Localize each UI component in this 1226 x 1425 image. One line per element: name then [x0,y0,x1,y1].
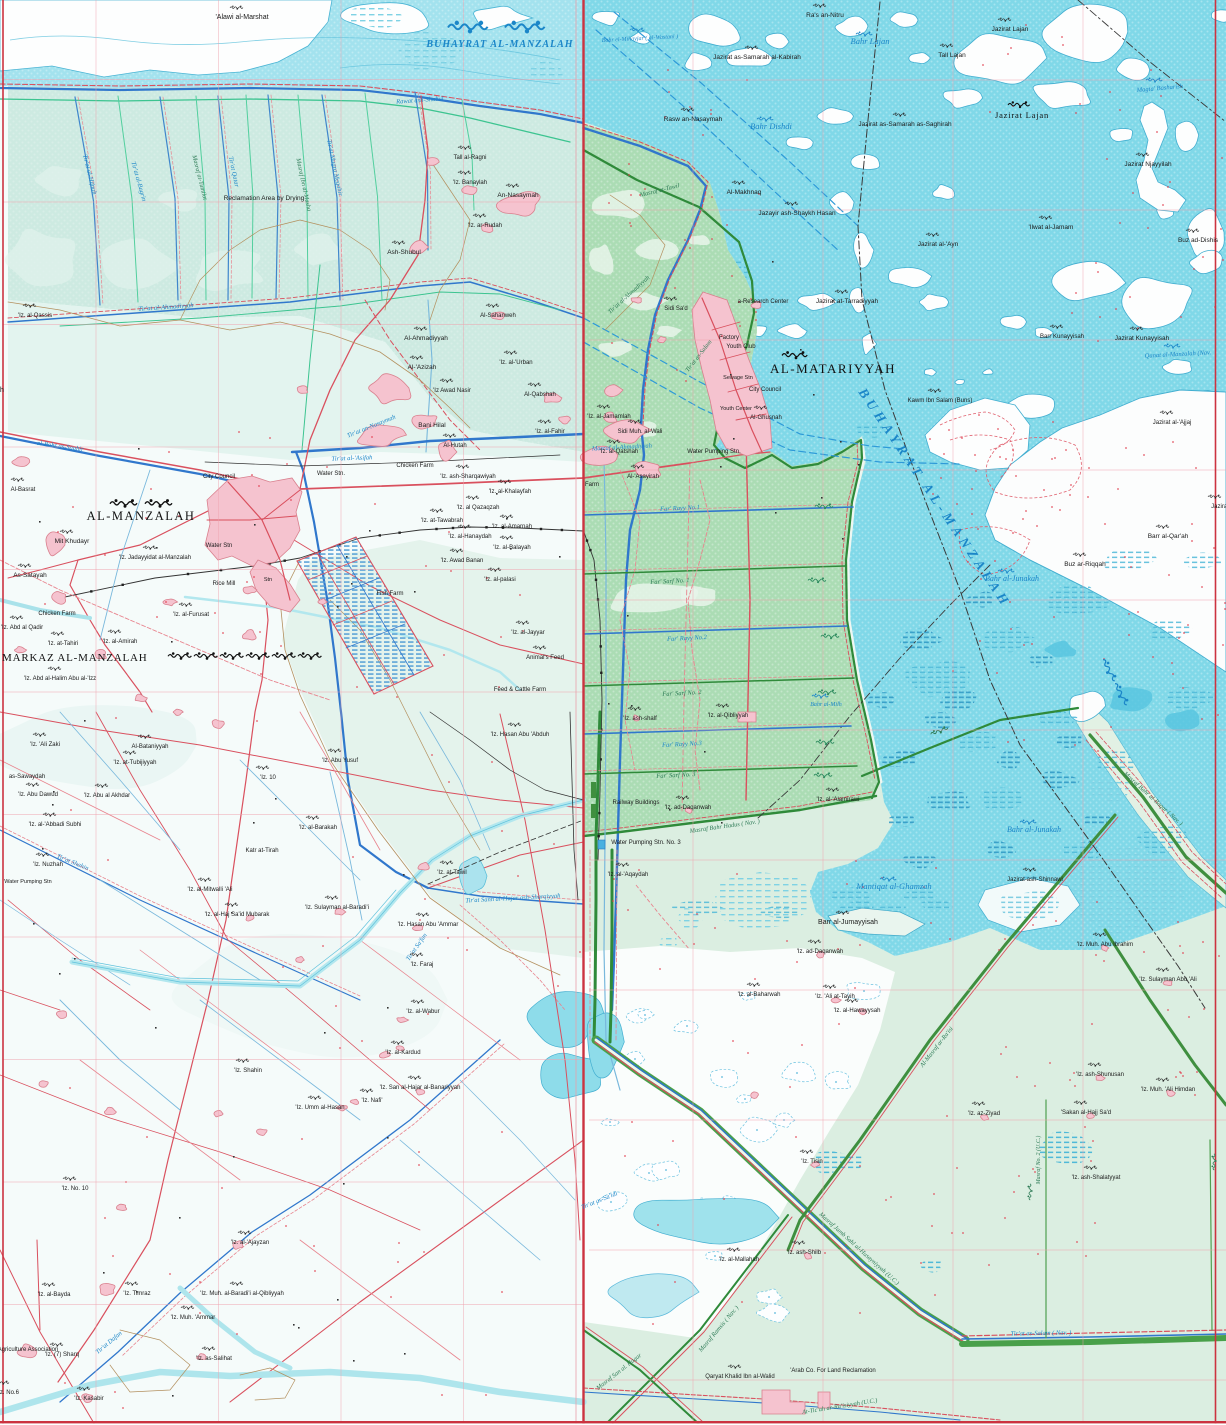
svg-text:Water Pumping Stn.: Water Pumping Stn. [687,449,741,455]
svg-text:Sewage Stn: Sewage Stn [723,375,753,381]
svg-text:'Iz. al-'Urban: 'Iz. al-'Urban [499,360,532,366]
svg-text:'Iz. al-'Abbadi Subhi: 'Iz. al-'Abbadi Subhi [29,822,82,828]
svg-text:'Iz. ash-shalf: 'Iz. ash-shalf [623,716,657,722]
svg-text:'Iz. San al-Hajar al-Banariyya: 'Iz. San al-Hajar al-Banariyyan [380,1085,461,1091]
svg-text:Railway Buildings: Railway Buildings [612,800,659,806]
svg-text:Tall al-Ragni: Tall al-Ragni [453,155,486,161]
svg-text:Bahr al-Milh: Bahr al-Milh [810,702,842,708]
svg-text:Al-Bataniyyah: Al-Bataniyyah [131,744,168,750]
svg-text:'Iz. al-Balayah: 'Iz. al-Balayah [493,545,531,551]
svg-text:'Iz. Faraj: 'Iz. Faraj [411,962,434,968]
svg-text:'Iz. Awad Banan: 'Iz. Awad Banan [441,558,484,564]
svg-text:Animal's Feed: Animal's Feed [526,655,564,661]
svg-text:'Iz. al-Haj Sa'id Mubarak: 'Iz. al-Haj Sa'id Mubarak [205,912,271,918]
svg-text:'Iz. al-Jamamlah: 'Iz. al-Jamamlah [587,414,631,420]
svg-text:Qaryat Khalid Ibn al-Walid: Qaryat Khalid Ibn al-Walid [705,1374,774,1380]
svg-text:As-Satayah: As-Satayah [13,572,47,579]
svg-text:An-Nasaymah: An-Nasaymah [497,192,539,199]
svg-text:'Iz. at-Tahiri: 'Iz. at-Tahiri [48,641,79,647]
svg-text:'Iz. Muh. Abu Ibrahim: 'Iz. Muh. Abu Ibrahim [1077,942,1133,948]
svg-text:Barr Kunayyisah: Barr Kunayyisah [1040,334,1084,340]
svg-text:MARKAZ AL-MANZALAH: MARKAZ AL-MANZALAH [2,652,147,664]
svg-text:'Iz. Sulayman Abu 'Ali: 'Iz. Sulayman Abu 'Ali [1139,977,1196,983]
svg-text:'Iz. as-Salihat: 'Iz. as-Salihat [196,1356,232,1362]
svg-text:Factory: Factory [719,335,739,341]
svg-text:'Iz. at-Tawabrah: 'Iz. at-Tawabrah [421,518,463,524]
svg-text:'Iz. ash-Shunusan: 'Iz. ash-Shunusan [1076,1072,1124,1078]
svg-text:'Iz. al-Jayyar: 'Iz. al-Jayyar [511,630,545,636]
svg-text:Jazirat as-Samarah al-Kabirah: Jazirat as-Samarah al-Kabirah [713,54,801,61]
svg-text:Bahr al-Junakah: Bahr al-Junakah [985,574,1039,583]
svg-text:Al-Basrat: Al-Basrat [11,487,36,493]
svg-text:Chicken Farm: Chicken Farm [396,463,433,469]
svg-text:'Alawi al-Marshat: 'Alawi al-Marshat [215,14,268,21]
svg-text:'Iz. al-Mallahah: 'Iz. al-Mallahah [719,1257,759,1263]
svg-text:Reclamation Area by Drying: Reclamation Area by Drying [224,195,305,202]
svg-text:'Iz. No.6: 'Iz. No.6 [0,1390,20,1396]
svg-text:Mantiqat al-Ghamzah: Mantiqat al-Ghamzah [855,881,931,891]
svg-text:Water Stn: Water Stn [206,543,232,549]
svg-text:'Iz. Muh. 'Ali Himdan: 'Iz. Muh. 'Ali Himdan [1141,1087,1195,1093]
svg-text:'Iz. Abu al Akhdar: 'Iz. Abu al Akhdar [84,793,130,799]
svg-text:'Iz. Abu Dawud: 'Iz. Abu Dawud [18,792,58,798]
svg-text:Stn: Stn [264,577,272,583]
svg-text:Al-Hutah: Al-Hutah [443,443,466,449]
svg-text:Buz ad-Dishis: Buz ad-Dishis [1178,237,1219,244]
svg-text:'Iz. Shahin: 'Iz. Shahin [234,1068,262,1074]
svg-text:Al-Makhnaq: Al-Makhnaq [727,189,762,196]
svg-text:Masraf No. 2 (U.C.): Masraf No. 2 (U.C.) [1035,1136,1042,1186]
svg-text:a-Research Center: a-Research Center [738,299,789,305]
svg-text:Water Pumping Stn: Water Pumping Stn [4,879,51,885]
svg-text:Jazirat at-Tarradiyyah: Jazirat at-Tarradiyyah [816,298,879,305]
svg-text:Al-'Azizah: Al-'Azizah [408,364,437,371]
svg-text:Barr al-Jumayyisah: Barr al-Jumayyisah [818,919,878,926]
svg-text:Al-Qabshah: Al-Qabshah [524,392,556,398]
svg-text:Jazirat Kunayyisah: Jazirat Kunayyisah [1115,335,1170,342]
svg-text:Feed & Cattle Farm: Feed & Cattle Farm [494,687,546,693]
svg-text:Fish Farm: Fish Farm [377,591,404,597]
svg-text:Ash-Shubul: Ash-Shubul [387,249,421,256]
svg-text:'Iz. at-Tawil: 'Iz. at-Tawil [437,870,466,876]
svg-text:Tir'at al-'Asifah: Tir'at al-'Asifah [331,454,372,462]
svg-text:'Iz. Abu Yusuf: 'Iz. Abu Yusuf [322,758,358,764]
svg-text:'Iz. al-Bayda: 'Iz. al-Bayda [38,1292,71,1298]
svg-text:Youth Center: Youth Center [720,406,752,412]
svg-text:'Iz. Abd al Qadir: 'Iz. Abd al Qadir [1,625,43,631]
svg-text:'Iz. ash-Shilb: 'Iz. ash-Shilb [787,1250,822,1256]
svg-text:'Iz. 10: 'Iz. 10 [260,775,276,781]
svg-text:'Iz. al-Hanaydah: 'Iz. al-Hanaydah [448,534,491,540]
svg-text:'Iz. Jadayyidat al-Manzalah: 'Iz. Jadayyidat al-Manzalah [119,555,191,561]
svg-text:'Iz Awad Nasir: 'Iz Awad Nasir [433,388,471,394]
svg-text:Water Stn.: Water Stn. [317,471,345,477]
svg-text:Al-Ghusnah: Al-Ghusnah [750,415,782,421]
svg-text:Jazirat al-'Ajjaj: Jazirat al-'Ajjaj [1153,420,1192,426]
svg-text:Bani Hilal: Bani Hilal [418,422,446,429]
svg-text:'Iz. Umm al-Hasan: 'Iz. Umm al-Hasan [295,1105,344,1111]
svg-text:Sidi Muh. al-Wali: Sidi Muh. al-Wali [618,429,663,435]
svg-text:'Iz. Nafi': 'Iz. Nafi' [362,1098,383,1104]
svg-text:'Iz. al-Fahir: 'Iz. al-Fahir [535,429,564,435]
svg-text:City Council: City Council [203,474,235,480]
svg-text:Al-Ahmadiyyah: Al-Ahmadiyyah [404,335,448,342]
svg-text:Rice Mill: Rice Mill [213,581,236,587]
svg-text:'Iz. Muh. al-Baradi'i al-Qibli: 'Iz. Muh. al-Baradi'i al-Qibliyyah [200,1291,284,1297]
svg-text:Chicken Farm: Chicken Farm [38,611,75,617]
svg-text:Ra's an-Nitru: Ra's an-Nitru [806,12,844,19]
svg-text:'Iz. Kasabir: 'Iz. Kasabir [74,1396,104,1402]
svg-text:'Arab Co. For Land Reclamation: 'Arab Co. For Land Reclamation [790,1368,876,1374]
svg-text:as-Sawaydah: as-Sawaydah [9,774,45,780]
svg-text:'Iz. 'Ali Zaki: 'Iz. 'Ali Zaki [30,742,60,748]
svg-text:City Council: City Council [749,387,781,393]
svg-text:'Iz. al-Qatshah: 'Iz. al-Qatshah [600,449,639,455]
svg-text:'Iz. Tisin: 'Iz. Tisin [801,1159,822,1165]
svg-text:AL-MATARIYYAH: AL-MATARIYYAH [770,361,896,376]
svg-text:'Ilwat al-Jamam: 'Ilwat al-Jamam [1029,224,1074,231]
svg-text:Bahr al-Junakah: Bahr al-Junakah [1007,825,1061,834]
svg-text:Rasw an-Nasaymah: Rasw an-Nasaymah [664,116,723,123]
svg-text:Jazayir ash-Shaykh Hasan: Jazayir ash-Shaykh Hasan [758,210,836,217]
svg-text:Jazirat Njayyilah: Jazirat Njayyilah [1124,161,1172,168]
svg-text:'Iz. Nuzhah: 'Iz. Nuzhah [33,862,63,868]
svg-text:Bahr Lajan: Bahr Lajan [851,36,890,46]
svg-text:'Iz. al-Hawayysah: 'Iz. al-Hawayysah [834,1008,881,1014]
svg-text:'Iz. al-'Alamirawi: 'Iz. al-'Alamirawi [817,797,860,803]
svg-text:Tir'at as-Salam ( Nav. ): Tir'at as-Salam ( Nav. ) [1011,1329,1072,1337]
svg-text:'Iz. ar-Rudah: 'Iz. ar-Rudah [468,223,502,229]
svg-text:'Iz. No. 10: 'Iz. No. 10 [62,1186,89,1192]
svg-text:'Iz. ad-Daqanwah: 'Iz. ad-Daqanwah [665,805,712,811]
svg-text:'Iz. al-Wabur: 'Iz. al-Wabur [406,1009,439,1015]
svg-text:'Iz. al-Qibliyyah: 'Iz. al-Qibliyyah [708,713,749,719]
svg-text:'Iz. (7) Sharq: 'Iz. (7) Sharq [45,1352,79,1358]
svg-text:Al-'Asayirah: Al-'Asayirah [627,474,659,480]
svg-text:'Iz. az-Ziyad: 'Iz. az-Ziyad [968,1111,1000,1117]
svg-text:BUHAYRAT AL-MANZALAH: BUHAYRAT AL-MANZALAH [425,39,573,50]
svg-text:Jazirat al-'Ayn: Jazirat al-'Ayn [918,241,959,248]
svg-text:Tall Lajan: Tall Lajan [938,52,966,59]
svg-text:'Iz. ash-Shalatyyat: 'Iz. ash-Shalatyyat [1072,1175,1121,1181]
svg-text:Katr at-Tirah: Katr at-Tirah [245,848,278,854]
svg-text:Sidi Sa'd: Sidi Sa'd [664,306,688,312]
svg-text:Mit Khudayr: Mit Khudayr [55,538,91,545]
svg-text:Farm: Farm [585,482,599,488]
svg-text:AL-MANZALAH: AL-MANZALAH [87,509,196,523]
svg-text:Barr al-Qar'ah: Barr al-Qar'ah [1148,533,1189,540]
svg-text:'Iz. Abd al-Halim Abu al-'Izz: 'Iz. Abd al-Halim Abu al-'Izz [24,676,96,682]
svg-text:'Iz. al-'Ajayzan: 'Iz. al-'Ajayzan [231,1240,269,1246]
svg-text:'Sakan al-Hajj Sa'd: 'Sakan al-Hajj Sa'd [1061,1110,1111,1116]
svg-text:Bahr Dishdi: Bahr Dishdi [750,121,792,131]
svg-text:Jazirat Lajan: Jazirat Lajan [992,26,1029,33]
svg-text:'Iz. Hasan Abu 'Abduh: 'Iz. Hasan Abu 'Abduh [491,732,550,738]
svg-text:'Iz. ash-Sharqawiyah: 'Iz. ash-Sharqawiyah [440,474,496,480]
svg-text:Al-Sahanweh: Al-Sahanweh [480,313,516,319]
svg-text:'Iz. al Qazaqzah: 'Iz. al Qazaqzah [457,505,500,511]
svg-text:'Iz. at-Tubijiyyah: 'Iz. at-Tubijiyyah [114,760,157,766]
svg-text:'Iz. al-Baharwah: 'Iz. al-Baharwah [738,992,781,998]
svg-text:'Iz. al-palasi: 'Iz. al-palasi [484,577,516,583]
svg-text:Jazirat-ash-Shinnawi: Jazirat-ash-Shinnawi [1007,877,1063,883]
svg-text:'Iz. al-Khalayfah: 'Iz. al-Khalayfah [489,489,532,495]
svg-text:Jazirat Lajan: Jazirat Lajan [995,110,1049,120]
svg-text:'Iz. al-Barakah: 'Iz. al-Barakah [299,825,337,831]
svg-text:Kawm Ibn Salam (Buns): Kawm Ibn Salam (Buns) [908,398,973,404]
svg-text:'Iz. Muh. 'Ammar: 'Iz. Muh. 'Ammar [171,1315,216,1321]
svg-text:'Iz. ad-Daqanwah: 'Iz. ad-Daqanwah [797,949,844,955]
svg-text:'Iz. 'Ali at-Tayih: 'Iz. 'Ali at-Tayih [815,994,855,1000]
svg-text:'Iz. al-Amirah: 'Iz. al-Amirah [103,639,138,645]
svg-text:'Iz. al-Qassis: 'Iz. al-Qassis [18,313,52,319]
svg-text:'Iz. al-Mitwalli 'Ali: 'Iz. al-Mitwalli 'Ali [188,887,233,893]
svg-text:Jazirat: Jazirat [1211,504,1226,510]
svg-text:Water Pumping Stn. No. 3: Water Pumping Stn. No. 3 [611,840,681,846]
svg-text:'Iz. al-Furusat: 'Iz. al-Furusat [173,612,209,618]
svg-text:ah: ah [0,387,4,394]
svg-text:'Iz. al-Amarnah: 'Iz. al-Amarnah [492,524,532,530]
svg-text:'Iz. Hasan Abu 'Ammar: 'Iz. Hasan Abu 'Ammar [398,922,459,928]
svg-text:'Iz. Sulayman al-Baradi'i: 'Iz. Sulayman al-Baradi'i [305,905,369,911]
svg-text:Buz ar-Riqqah: Buz ar-Riqqah [1064,561,1106,568]
svg-text:'Iz. al-'Aqaydah: 'Iz. al-'Aqaydah [608,872,649,878]
svg-text:Jazirat as-Samarah as-Saghirah: Jazirat as-Samarah as-Saghirah [858,121,952,128]
svg-text:Youth Club: Youth Club [726,344,756,350]
svg-text:'Iz. Banaylah: 'Iz. Banaylah [453,180,487,186]
svg-text:'Iz. al-Kardud: 'Iz. al-Kardud [385,1050,420,1056]
